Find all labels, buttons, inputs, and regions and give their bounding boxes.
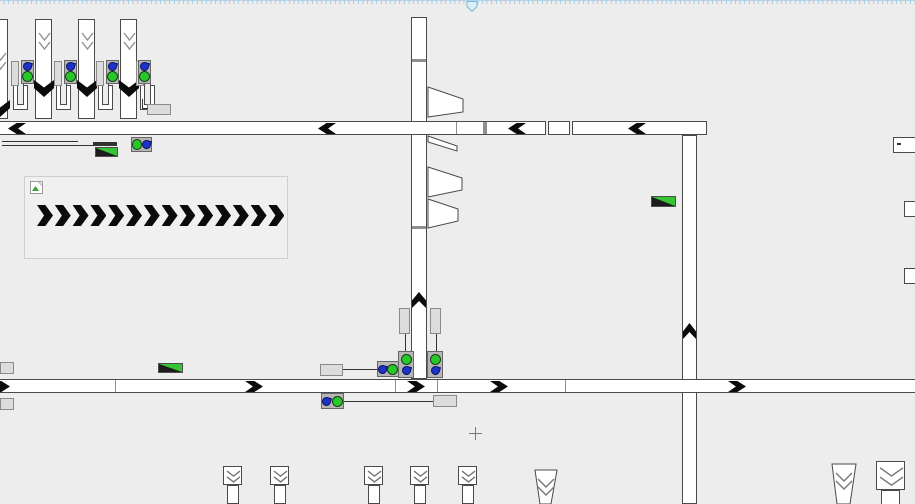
connector-line bbox=[2, 141, 78, 142]
label-box[interactable] bbox=[0, 398, 14, 410]
speed-ramp-icon[interactable] bbox=[651, 196, 676, 207]
simulation-canvas[interactable] bbox=[0, 0, 915, 504]
status-light-green-icon bbox=[22, 71, 33, 82]
gate-chevron-outline-icon bbox=[80, 31, 95, 57]
sensor[interactable] bbox=[427, 351, 443, 378]
speed-ramp-icon[interactable] bbox=[95, 147, 118, 157]
broken-image-icon bbox=[30, 181, 43, 194]
diverter-plow[interactable] bbox=[428, 87, 463, 117]
conveyor-top-main-2[interactable] bbox=[548, 121, 570, 135]
conveyor-vertical-center[interactable] bbox=[411, 17, 427, 379]
sensor[interactable] bbox=[106, 60, 119, 84]
legend-chevron-right-icon bbox=[144, 205, 160, 226]
gate-head-chevron-icon bbox=[366, 468, 383, 485]
gate-body[interactable] bbox=[274, 485, 286, 504]
conveyor-vertical-right[interactable] bbox=[682, 135, 697, 504]
legend-panel[interactable] bbox=[24, 176, 288, 259]
ruler bbox=[0, 0, 915, 1]
label-box[interactable] bbox=[320, 364, 343, 376]
crosshair-cursor-icon bbox=[475, 427, 476, 440]
connector-line bbox=[344, 401, 433, 402]
gate-strip-3[interactable] bbox=[78, 19, 95, 119]
flow-drop-blue-icon bbox=[321, 395, 332, 406]
legend-chevron-right-icon bbox=[126, 205, 142, 226]
legend-chevron-right-icon bbox=[108, 205, 124, 226]
connector-line bbox=[93, 142, 117, 146]
gate-funnel[interactable] bbox=[534, 469, 558, 504]
gate-head-chevron-icon bbox=[412, 468, 429, 485]
legend-chevron-right-icon bbox=[55, 205, 71, 226]
hook-channel-notch bbox=[102, 84, 109, 105]
gate-strip-4[interactable] bbox=[120, 19, 137, 119]
legend-chevron-right-icon bbox=[215, 205, 231, 226]
sensor[interactable] bbox=[321, 393, 344, 409]
gate-body[interactable] bbox=[227, 485, 239, 504]
legend-chevron-right-icon bbox=[37, 205, 53, 226]
flow-drop-blue-icon bbox=[377, 363, 388, 374]
ruler-minor-ticks bbox=[0, 0, 915, 4]
conveyor-segment-divider bbox=[483, 122, 487, 134]
connector-line bbox=[405, 334, 406, 352]
legend-chevron-right-icon bbox=[197, 205, 213, 226]
status-light-green-icon bbox=[332, 396, 343, 407]
sensor[interactable] bbox=[64, 60, 77, 84]
edge-box-mark bbox=[897, 143, 901, 145]
conveyor-segment-divider bbox=[456, 122, 457, 134]
ruler-marker-icon[interactable] bbox=[466, 1, 478, 12]
conveyor-segment-divider bbox=[412, 59, 426, 62]
label-box[interactable] bbox=[0, 362, 14, 374]
gate-body[interactable] bbox=[414, 485, 426, 504]
legend-chevron-right-icon bbox=[179, 205, 195, 226]
gate-head[interactable] bbox=[223, 466, 242, 485]
buffer-slot[interactable] bbox=[11, 61, 19, 86]
buffer-slot[interactable] bbox=[399, 308, 410, 334]
sensor[interactable] bbox=[398, 351, 414, 378]
gate-flow-chevron-down-icon bbox=[77, 80, 97, 97]
sensor[interactable] bbox=[138, 60, 151, 84]
sensor[interactable] bbox=[131, 137, 152, 152]
flow-drop-blue-icon bbox=[107, 61, 118, 72]
edge-box[interactable] bbox=[893, 137, 915, 153]
gate-chevron-outline-icon bbox=[37, 31, 52, 57]
gate-body[interactable] bbox=[881, 490, 900, 504]
gate-head[interactable] bbox=[876, 461, 905, 490]
buffer-slot[interactable] bbox=[430, 308, 441, 334]
conveyor-segment-divider bbox=[437, 380, 438, 392]
gate-chevron-outline-icon bbox=[0, 51, 8, 77]
hook-channel-notch bbox=[60, 84, 67, 105]
gate-head[interactable] bbox=[410, 466, 429, 485]
conveyor-top-main-1[interactable] bbox=[0, 121, 546, 135]
connector-line bbox=[436, 334, 437, 352]
gate-body[interactable] bbox=[462, 485, 474, 504]
conveyor-bottom-main[interactable] bbox=[0, 379, 915, 393]
gate-strip-2[interactable] bbox=[35, 19, 52, 119]
speed-ramp-icon[interactable] bbox=[158, 363, 183, 373]
label-box[interactable] bbox=[147, 104, 171, 115]
conveyor-segment-divider bbox=[395, 380, 396, 392]
sensor[interactable] bbox=[21, 60, 34, 84]
status-light-green-icon bbox=[430, 354, 441, 365]
conveyor-segment-divider bbox=[412, 226, 426, 229]
buffer-slot[interactable] bbox=[54, 61, 62, 86]
status-light-green-icon bbox=[401, 354, 412, 365]
conveyor-segment-divider bbox=[115, 380, 116, 392]
label-box[interactable] bbox=[433, 395, 457, 407]
gate-funnel[interactable] bbox=[831, 463, 857, 504]
legend-chevron-right-icon bbox=[251, 205, 267, 226]
gate-body[interactable] bbox=[368, 485, 380, 504]
legend-chevron-right-icon bbox=[268, 205, 284, 226]
flow-drop-blue-icon bbox=[429, 365, 440, 376]
diverter-plow[interactable] bbox=[428, 167, 462, 197]
gate-flow-chevron-down-icon bbox=[0, 100, 10, 117]
legend-chevron-right-icon bbox=[233, 205, 249, 226]
gate-head-chevron-icon bbox=[460, 468, 477, 485]
buffer-slot[interactable] bbox=[96, 61, 104, 86]
sensor[interactable] bbox=[377, 361, 399, 377]
flow-drop-blue-icon bbox=[141, 139, 152, 150]
status-light-green-icon bbox=[65, 71, 76, 82]
conveyor-segment-divider bbox=[565, 380, 566, 392]
gate-head[interactable] bbox=[364, 466, 383, 485]
diverter-plow[interactable] bbox=[428, 136, 457, 151]
flow-drop-blue-icon bbox=[139, 61, 150, 72]
edge-box[interactable] bbox=[904, 201, 915, 217]
gate-head-chevron-icon bbox=[225, 468, 242, 485]
gate-head-chevron-icon bbox=[878, 463, 905, 490]
flow-drop-blue-icon bbox=[65, 61, 76, 72]
status-light-green-icon bbox=[107, 71, 118, 82]
edge-box[interactable] bbox=[904, 268, 915, 284]
connector-line bbox=[343, 369, 377, 370]
status-light-green-icon bbox=[387, 364, 398, 375]
legend-chevron-right-icon bbox=[73, 205, 89, 226]
connector-line bbox=[2, 145, 93, 146]
legend-chevron-right-icon bbox=[162, 205, 178, 226]
gate-head-chevron-icon bbox=[272, 468, 289, 485]
gate-head[interactable] bbox=[270, 466, 289, 485]
hook-channel-notch bbox=[17, 84, 24, 105]
gate-chevron-outline-icon bbox=[122, 31, 137, 57]
gate-head[interactable] bbox=[458, 466, 477, 485]
gate-strip-1[interactable] bbox=[0, 19, 8, 119]
gate-flow-chevron-down-icon bbox=[34, 80, 54, 97]
status-light-green-icon bbox=[139, 71, 150, 82]
diverter-plow[interactable] bbox=[428, 199, 458, 228]
flow-drop-blue-icon bbox=[400, 365, 411, 376]
hook-channel-notch bbox=[144, 84, 151, 105]
flow-drop-blue-icon bbox=[22, 61, 33, 72]
legend-chevron-right-icon bbox=[90, 205, 106, 226]
connector-line bbox=[142, 108, 148, 109]
